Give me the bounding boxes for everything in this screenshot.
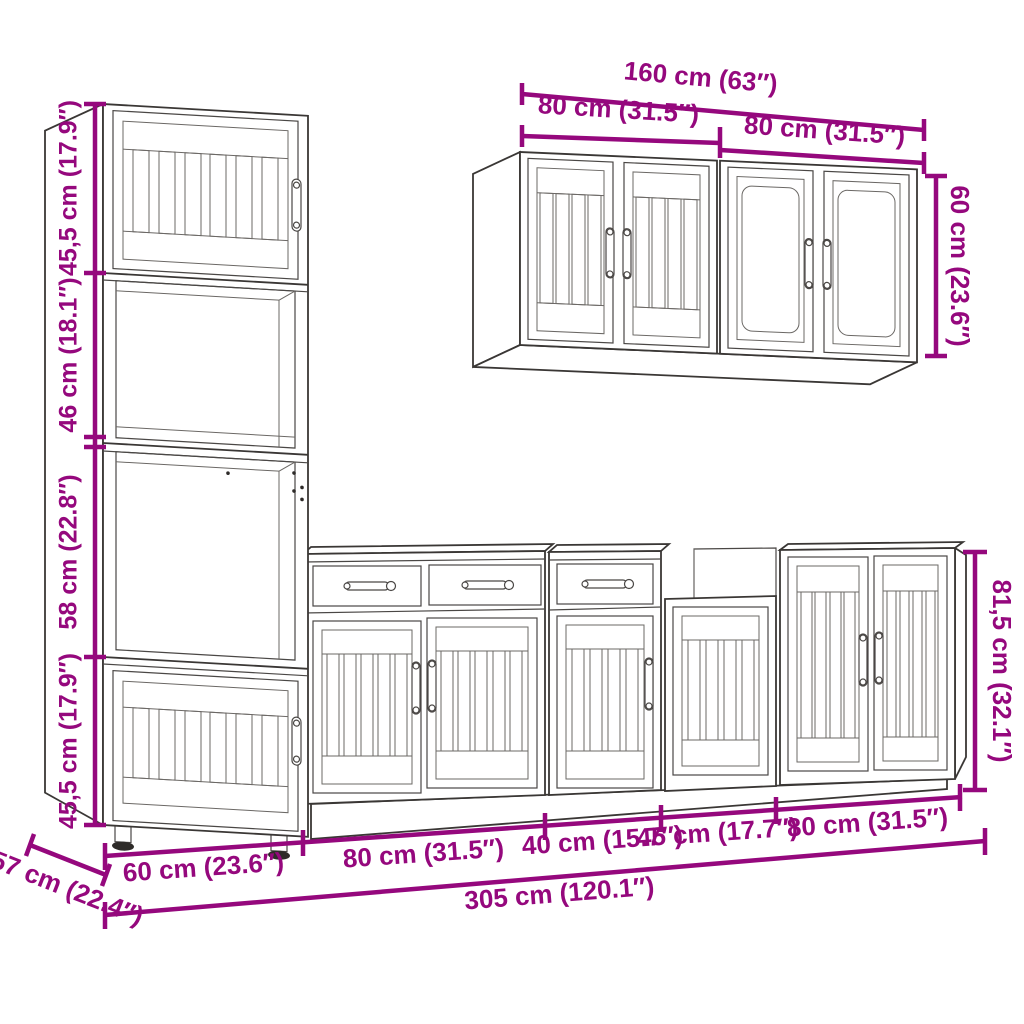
sink-back-panel — [694, 548, 776, 599]
cabinet-door — [557, 616, 653, 788]
cabinet-door — [874, 556, 947, 770]
tall-lower-door — [113, 671, 301, 832]
dim-tall-section3: 58 cm (22.8″) — [55, 474, 83, 629]
dim-wall-height-label: 60 cm (23.6″) — [945, 185, 975, 346]
door-handle — [292, 717, 301, 766]
diagram-svg: 45,5 cm (17.9″) 46 cm (18.1″) 58 cm (22.… — [0, 0, 1024, 1024]
cabinet-glass-door — [728, 167, 813, 352]
drawer-handle — [344, 582, 396, 591]
door-handle — [805, 238, 813, 288]
dim-tall-section1: 45,5 cm (17.9″) — [55, 100, 83, 276]
wall-cabinet-80-glass — [720, 161, 917, 363]
base-right-side-panel — [955, 548, 966, 779]
door-handle — [623, 228, 631, 278]
wall-cabinet-group — [473, 150, 917, 386]
dim-wall-left-width: 80 cm (31.5″) — [537, 89, 700, 129]
drawer-handle — [582, 580, 634, 589]
wall-cabinet-80-slat — [520, 152, 717, 354]
base-cabinet-80-drawers — [303, 544, 553, 804]
cabinet-glass-door — [824, 171, 909, 356]
cabinet-door — [673, 607, 768, 775]
dim-tall-section2: 46 cm (18.1″) — [55, 277, 83, 432]
door-handle — [428, 660, 436, 712]
door-handle — [645, 658, 653, 710]
door-handle — [823, 239, 831, 289]
cabinet-foot — [112, 826, 134, 852]
cabinet-door — [528, 158, 613, 343]
door-handle — [875, 632, 883, 684]
dim-wall-total-width: 160 cm (63″) — [623, 55, 779, 98]
door-handle — [412, 662, 420, 714]
dim-base-height-label: 81,5 cm (32.1″) — [987, 579, 1017, 762]
kitchen-cabinet-dimension-diagram: 45,5 cm (17.9″) 46 cm (18.1″) 58 cm (22.… — [0, 0, 1024, 1024]
dim-wall-height: 60 cm (23.6″) — [925, 176, 975, 356]
dim-tall-section4: 45,5 cm (17.9″) — [55, 653, 83, 829]
cabinet-door — [788, 557, 868, 771]
cabinet-door — [427, 618, 537, 788]
base-cabinet-row — [303, 542, 966, 839]
door-handle — [292, 179, 301, 232]
dim-base-total-label: 305 cm (120.1″) — [463, 871, 655, 916]
base-cabinet-80-doors — [780, 542, 963, 785]
door-handle — [606, 228, 614, 278]
tall-oven-cabinet — [45, 101, 308, 862]
dim-base-height: 81,5 cm (32.1″) — [963, 552, 1017, 790]
cabinet-door — [624, 163, 709, 348]
cabinet-door — [313, 621, 421, 793]
drawer-handle — [462, 581, 514, 590]
base-cabinet-40 — [549, 544, 669, 795]
wall-side-panel — [473, 150, 520, 369]
base-cabinet-45-sink — [665, 548, 776, 791]
door-handle — [859, 634, 867, 686]
tall-upper-door — [113, 111, 301, 280]
dim-wall-right-width: 80 cm (31.5″) — [743, 109, 906, 150]
